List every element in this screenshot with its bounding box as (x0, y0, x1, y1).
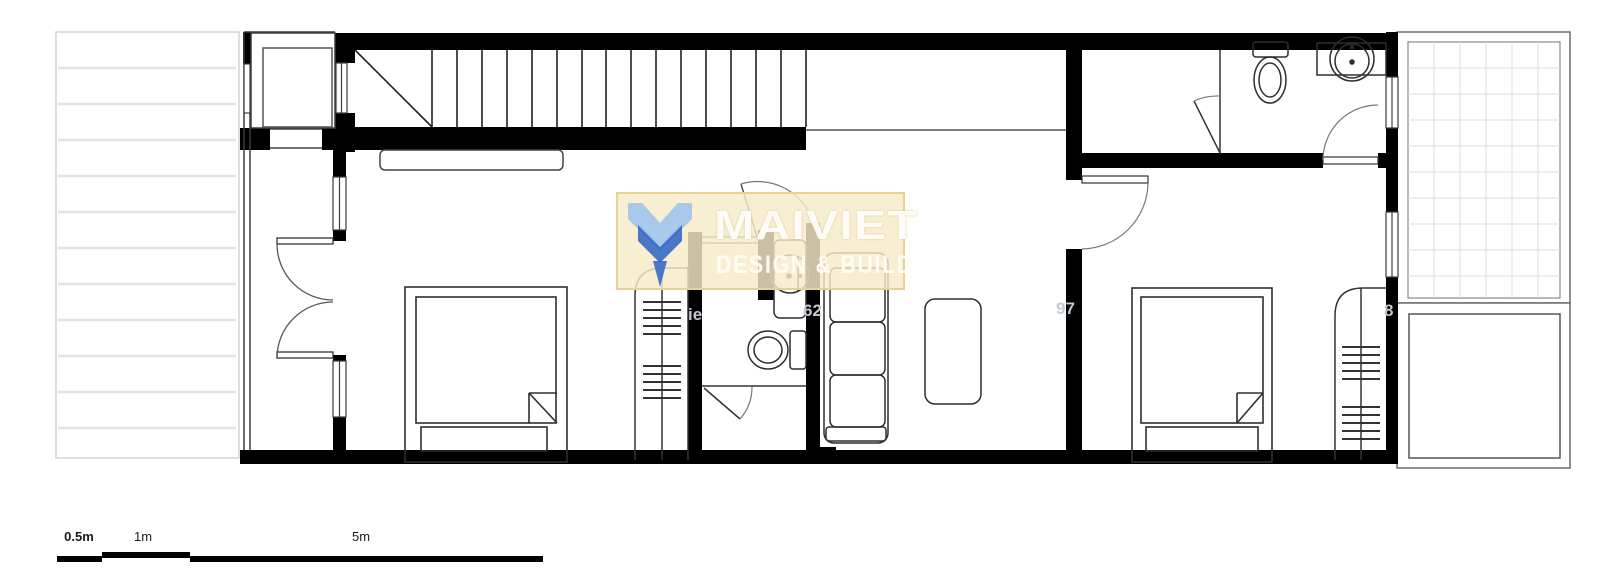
sheet-fold (529, 393, 557, 423)
watermark-title: MAIVIET (714, 202, 918, 248)
bed-icon (1132, 288, 1272, 462)
scale-label-half: 0.5m (64, 529, 94, 544)
toilet-icon (748, 331, 806, 369)
floor-plan-page: ie 62 97 8 MAIVIET DESIGN & BUILD 0.5m 1… (0, 0, 1600, 580)
scale-label-one: 1m (134, 529, 152, 544)
stair-treads (432, 50, 806, 127)
door-swing (1194, 96, 1220, 153)
door-swing (704, 387, 752, 419)
terrace-grid (1397, 32, 1570, 303)
svg-text:97: 97 (1056, 299, 1075, 318)
faint-watermark-fragments: ie 62 97 8 (688, 299, 1393, 324)
scale-bar: 0.5m 1m 5m (57, 529, 543, 562)
french-door-swing (277, 238, 333, 358)
watermark-subtitle: DESIGN & BUILD (716, 251, 914, 279)
wardrobe-icon (635, 268, 688, 460)
terrace-lower-panel (1397, 303, 1570, 468)
svg-text:8: 8 (1384, 301, 1393, 320)
scale-label-five: 5m (352, 529, 370, 544)
awning-hatch (56, 32, 239, 458)
toilet-icon (1253, 42, 1288, 103)
staircase (355, 50, 806, 127)
watermark: MAIVIET DESIGN & BUILD (617, 193, 918, 289)
door-swing (1082, 176, 1148, 249)
floor-plan-drawing: ie 62 97 8 MAIVIET DESIGN & BUILD 0.5m 1… (0, 0, 1600, 580)
sink-icon (1317, 37, 1386, 81)
desk (380, 150, 563, 170)
bed-icon (405, 287, 567, 462)
stair-break-line (355, 50, 432, 127)
svg-text:ie: ie (688, 305, 702, 324)
coffee-table (925, 299, 981, 404)
bathroom-2 (1194, 37, 1386, 164)
wardrobe-icon (1335, 288, 1386, 460)
sheet-fold (1237, 393, 1263, 423)
svg-text:62: 62 (803, 301, 822, 320)
door-swing (1323, 105, 1378, 164)
